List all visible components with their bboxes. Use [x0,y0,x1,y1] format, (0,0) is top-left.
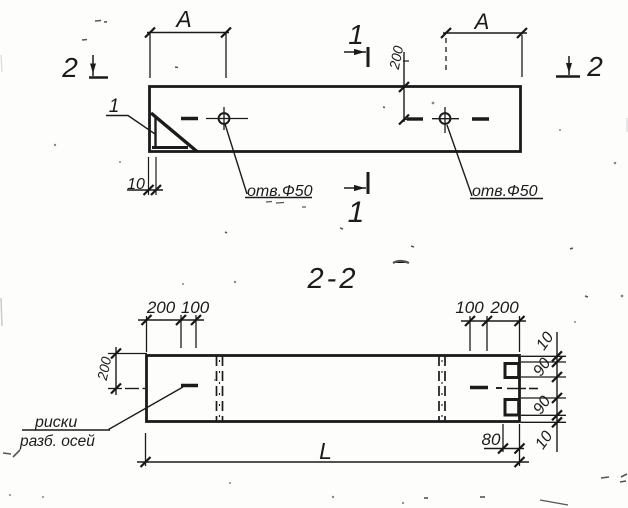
svg-text:1: 1 [348,19,364,50]
svg-text:200: 200 [489,298,519,317]
svg-text:1: 1 [348,196,365,229]
svg-text:2-2: 2-2 [307,263,359,295]
svg-text:отв.Ф50: отв.Ф50 [472,183,538,200]
svg-text:200: 200 [386,44,407,71]
svg-text:10: 10 [532,428,556,452]
svg-text:отв.Ф50: отв.Ф50 [247,183,313,200]
svg-text:2: 2 [61,52,78,83]
svg-text:200: 200 [94,355,115,382]
svg-text:L: L [319,438,332,464]
svg-text:2: 2 [586,51,603,82]
svg-text:разб. осей: разб. осей [19,433,95,450]
svg-text:A: A [473,9,490,34]
svg-text:10: 10 [127,176,145,193]
svg-text:200: 200 [146,298,176,317]
svg-text:10: 10 [533,329,557,353]
svg-text:1: 1 [109,96,120,117]
svg-text:90: 90 [530,393,554,417]
svg-text:80: 80 [482,430,501,449]
svg-text:90: 90 [530,355,554,379]
svg-text:риски: риски [34,414,77,431]
svg-text:A: A [174,6,191,32]
svg-text:100: 100 [455,298,484,317]
svg-text:100: 100 [181,298,210,317]
